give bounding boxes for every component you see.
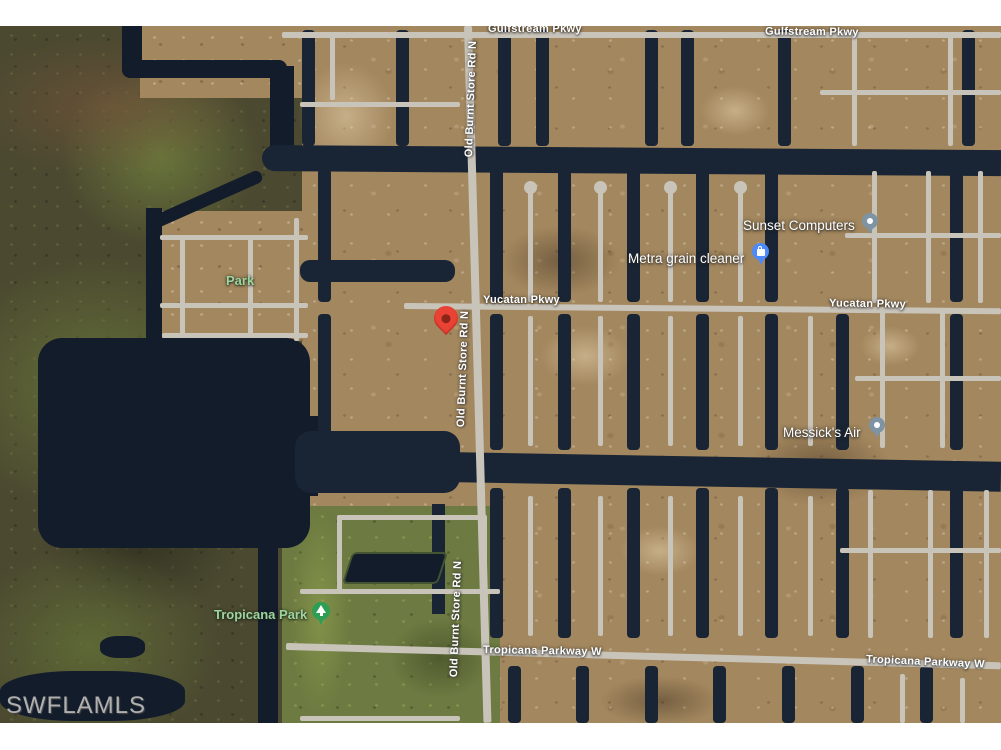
canal-segment <box>645 30 658 146</box>
canal-segment <box>765 314 778 450</box>
canal-segment <box>270 66 294 150</box>
canal-segment <box>627 314 640 450</box>
canal-segment <box>490 488 503 638</box>
canal-segment <box>778 30 791 146</box>
canal-segment <box>681 30 694 146</box>
street <box>668 188 673 302</box>
sand-lot <box>540 326 630 386</box>
street <box>180 235 185 338</box>
street <box>940 308 945 448</box>
dark-lot <box>600 676 720 723</box>
canal-segment <box>836 488 849 638</box>
street <box>598 188 603 302</box>
canal-segment <box>302 30 315 146</box>
cul-de-sac <box>524 181 537 194</box>
poi-label-sunset-computers[interactable]: Sunset Computers <box>743 218 855 233</box>
street <box>738 496 743 636</box>
canal-segment <box>696 169 709 302</box>
canal-segment <box>536 30 549 146</box>
street <box>337 515 487 520</box>
canal-segment <box>696 488 709 638</box>
canal-segment <box>645 666 658 723</box>
canal-segment <box>950 488 963 638</box>
street <box>872 171 877 303</box>
street <box>960 678 965 723</box>
screenshot: Gulfstream Pkwy Gulfstream Pkwy Yucatan … <box>0 0 1001 750</box>
canal-segment <box>122 60 287 78</box>
street <box>926 171 931 303</box>
canal-segment <box>490 169 503 302</box>
road-label-tropicana-parkway-w: Tropicana Parkway W <box>483 644 602 658</box>
swflamls-watermark: SWFLAMLS <box>6 692 146 720</box>
canal-segment <box>765 169 778 302</box>
road-label-yucatan-pkwy: Yucatan Pkwy <box>483 294 560 306</box>
street <box>300 589 500 594</box>
road-label-gulfstream-pkwy: Gulfstream Pkwy <box>488 26 582 35</box>
street <box>482 515 487 594</box>
gray-dot-pin-icon[interactable] <box>869 417 885 433</box>
street <box>928 490 933 638</box>
canal-segment <box>558 169 571 302</box>
marsh-pool <box>100 636 145 658</box>
sand-lot <box>700 86 770 136</box>
road-label-tropicana-parkway-w: Tropicana Parkway W <box>866 653 985 670</box>
tropicana-park-label: Tropicana Park <box>214 607 307 622</box>
gray-dot-pin-icon[interactable] <box>862 213 878 229</box>
canal-segment <box>962 30 975 146</box>
canal-segment <box>558 488 571 638</box>
canal-segment <box>490 314 503 450</box>
cul-de-sac <box>734 181 747 194</box>
canal-segment <box>627 488 640 638</box>
canal-segment <box>627 169 640 302</box>
street <box>300 716 460 721</box>
canal-segment <box>318 314 331 450</box>
canal-segment <box>782 666 795 723</box>
letterbox-top <box>0 0 1001 26</box>
street <box>738 188 743 302</box>
canal-segment <box>765 488 778 638</box>
canal-segment <box>498 30 511 146</box>
street <box>598 496 603 636</box>
street <box>840 548 1001 553</box>
street <box>300 102 460 107</box>
canal-segment <box>713 666 726 723</box>
pond <box>342 552 448 584</box>
poi-label-metra-grain-cleaner[interactable]: Metra grain cleaner <box>628 251 744 266</box>
canal-segment <box>558 314 571 450</box>
canal-segment <box>696 314 709 450</box>
tree-glyph <box>316 605 326 613</box>
sand-lot <box>860 326 920 366</box>
cul-de-sac <box>664 181 677 194</box>
street <box>984 490 989 638</box>
road-gulfstream-pkwy <box>282 32 1001 38</box>
canal-segment <box>920 666 933 723</box>
park-label: Park <box>226 273 254 288</box>
canal-segment <box>576 666 589 723</box>
canal-segment <box>318 169 331 302</box>
letterbox-bottom <box>0 723 1001 750</box>
canal-segment <box>396 30 409 146</box>
street <box>978 171 983 303</box>
street <box>598 316 603 446</box>
street <box>330 36 335 100</box>
canal-segment <box>950 314 963 450</box>
canal-segment <box>146 208 162 344</box>
street <box>820 90 1001 95</box>
poi-label-messicks-air[interactable]: Messick's Air <box>783 425 861 440</box>
park-field-dark <box>390 618 490 698</box>
street <box>294 218 299 341</box>
street <box>337 515 342 594</box>
street <box>528 316 533 446</box>
street <box>668 316 673 446</box>
street <box>668 496 673 636</box>
street <box>738 316 743 446</box>
road-label-gulfstream-pkwy: Gulfstream Pkwy <box>765 26 859 38</box>
satellite-map[interactable]: Gulfstream Pkwy Gulfstream Pkwy Yucatan … <box>0 26 1001 723</box>
street <box>900 674 905 723</box>
park-tree-pin-icon[interactable] <box>312 602 330 620</box>
street <box>868 490 873 638</box>
shopping-bag-glyph <box>757 249 765 256</box>
road-label-yucatan-pkwy: Yucatan Pkwy <box>829 297 906 310</box>
canal-segment <box>508 666 521 723</box>
street <box>808 496 813 636</box>
street <box>855 376 1001 381</box>
street <box>528 496 533 636</box>
canal-segment <box>851 666 864 723</box>
street <box>528 188 533 302</box>
shopping-bag-pin-icon[interactable] <box>752 243 769 260</box>
cul-de-sac <box>594 181 607 194</box>
